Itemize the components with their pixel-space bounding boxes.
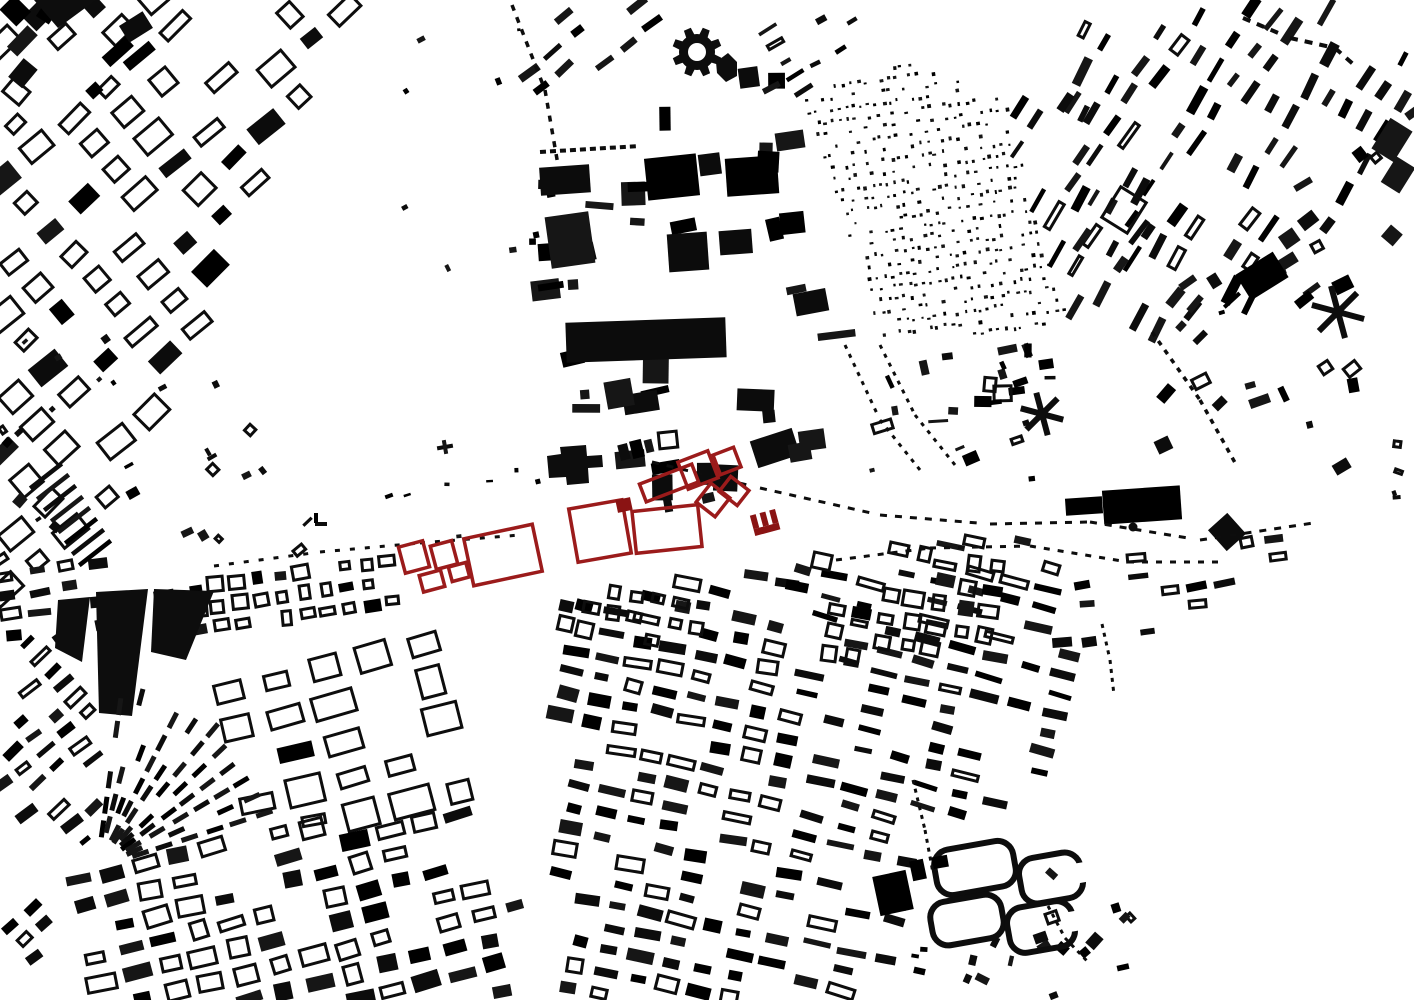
city-map-canvas bbox=[0, 0, 1414, 1000]
figure-ground-map bbox=[0, 0, 1414, 1000]
building-fabric-layer bbox=[0, 0, 1414, 1000]
